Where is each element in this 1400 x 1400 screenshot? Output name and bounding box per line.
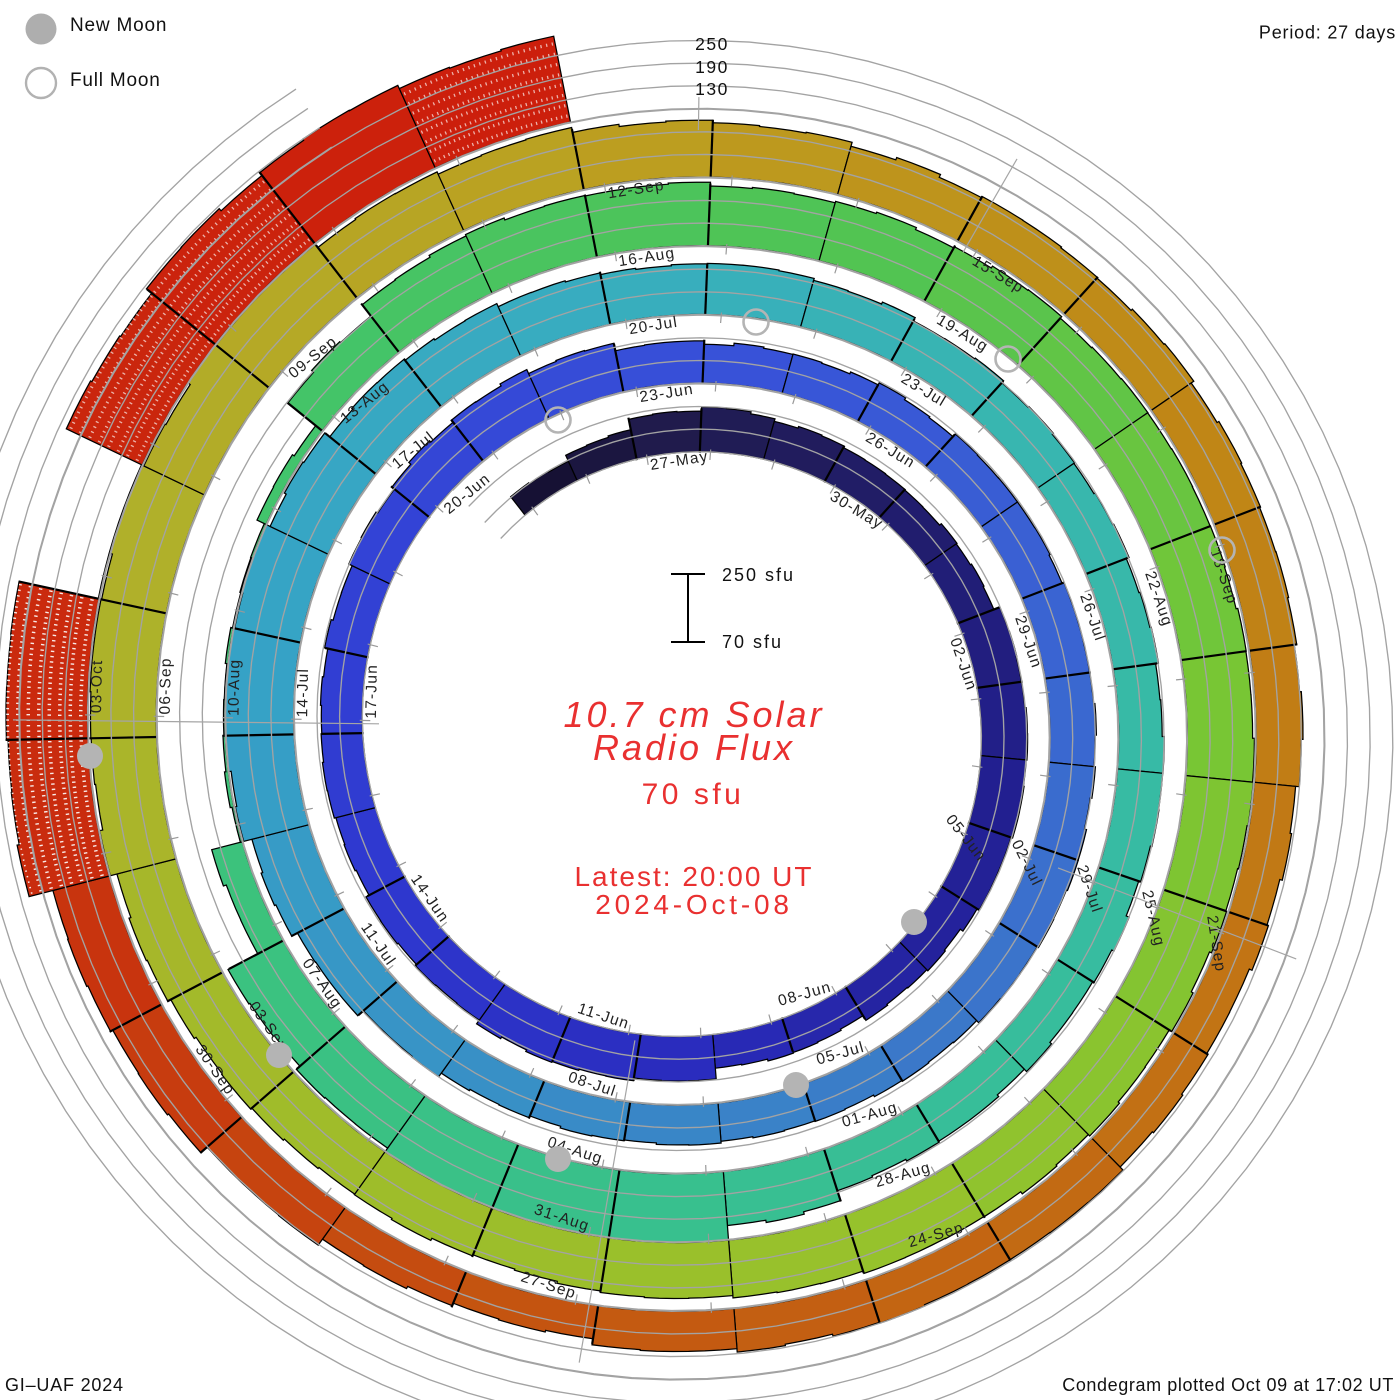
svg-text:GI–UAF 2024: GI–UAF 2024 — [5, 1375, 124, 1395]
svg-text:Period: 27 days: Period: 27 days — [1259, 23, 1396, 43]
svg-text:Latest: 20:00 UT: Latest: 20:00 UT — [574, 861, 813, 892]
svg-text:New Moon: New Moon — [70, 15, 167, 36]
svg-text:2024-Oct-08: 2024-Oct-08 — [595, 889, 792, 920]
svg-text:130: 130 — [695, 79, 729, 99]
svg-text:06-Sep: 06-Sep — [157, 657, 175, 715]
svg-text:190: 190 — [695, 57, 729, 77]
svg-text:10-Aug: 10-Aug — [225, 659, 243, 717]
svg-text:Full Moon: Full Moon — [70, 70, 161, 91]
svg-text:70 sfu: 70 sfu — [722, 632, 783, 652]
svg-text:250: 250 — [695, 34, 729, 54]
svg-text:03-Oct: 03-Oct — [88, 659, 106, 713]
svg-text:17-Jun: 17-Jun — [363, 664, 381, 719]
svg-text:14-Jul: 14-Jul — [294, 668, 312, 718]
svg-text:250 sfu: 250 sfu — [722, 565, 795, 585]
svg-text:Radio Flux: Radio Flux — [593, 727, 795, 768]
svg-text:70 sfu: 70 sfu — [642, 778, 745, 811]
svg-text:Condegram plotted Oct 09 at 17: Condegram plotted Oct 09 at 17:02 UT — [1062, 1375, 1394, 1395]
